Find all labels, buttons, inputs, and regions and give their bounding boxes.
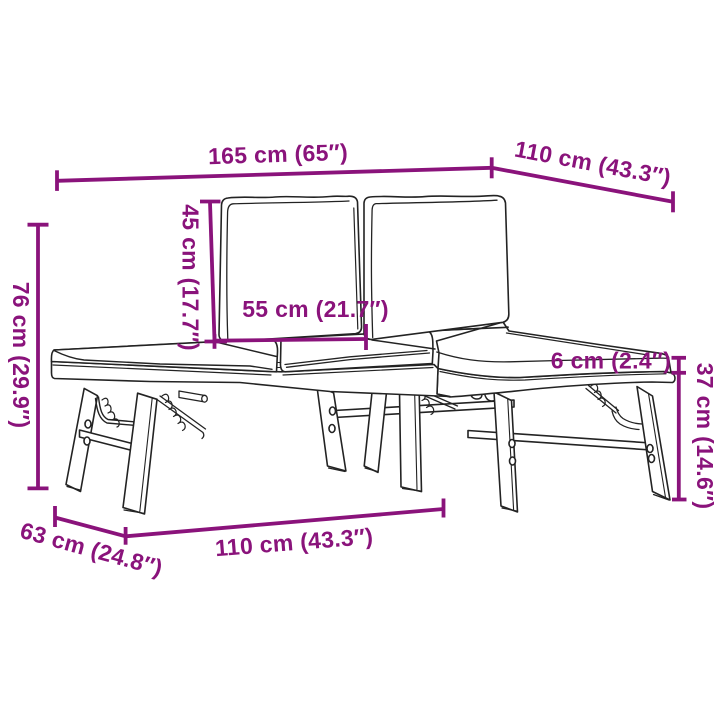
svg-text:165 cm (65″): 165 cm (65″) (208, 139, 349, 169)
svg-text:37 cm (14.6″): 37 cm (14.6″) (692, 363, 718, 510)
svg-text:76 cm (29.9″): 76 cm (29.9″) (8, 282, 34, 429)
svg-text:45 cm (17.7″): 45 cm (17.7″) (178, 204, 204, 351)
svg-text:6 cm (2.4″): 6 cm (2.4″) (551, 348, 671, 374)
svg-text:55 cm (21.7″): 55 cm (21.7″) (242, 296, 389, 322)
